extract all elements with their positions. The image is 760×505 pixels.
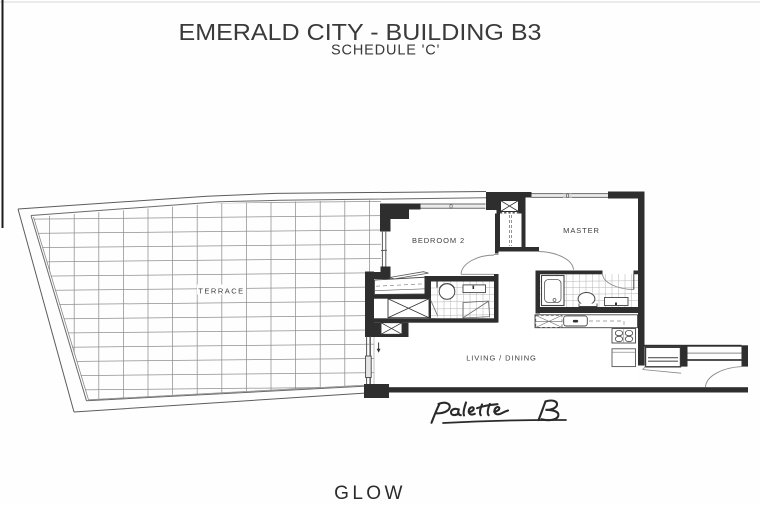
svg-text:MASTER: MASTER [563,226,600,235]
svg-text:BEDROOM 2: BEDROOM 2 [412,236,465,245]
svg-text:GLOW: GLOW [334,483,406,504]
svg-text:EMERALD CITY - BUILDING B3: EMERALD CITY - BUILDING B3 [179,19,542,45]
svg-text:TERRACE: TERRACE [198,287,244,296]
svg-text:LIVING / DINING: LIVING / DINING [466,354,537,363]
svg-text:SCHEDULE 'C': SCHEDULE 'C' [331,42,440,58]
